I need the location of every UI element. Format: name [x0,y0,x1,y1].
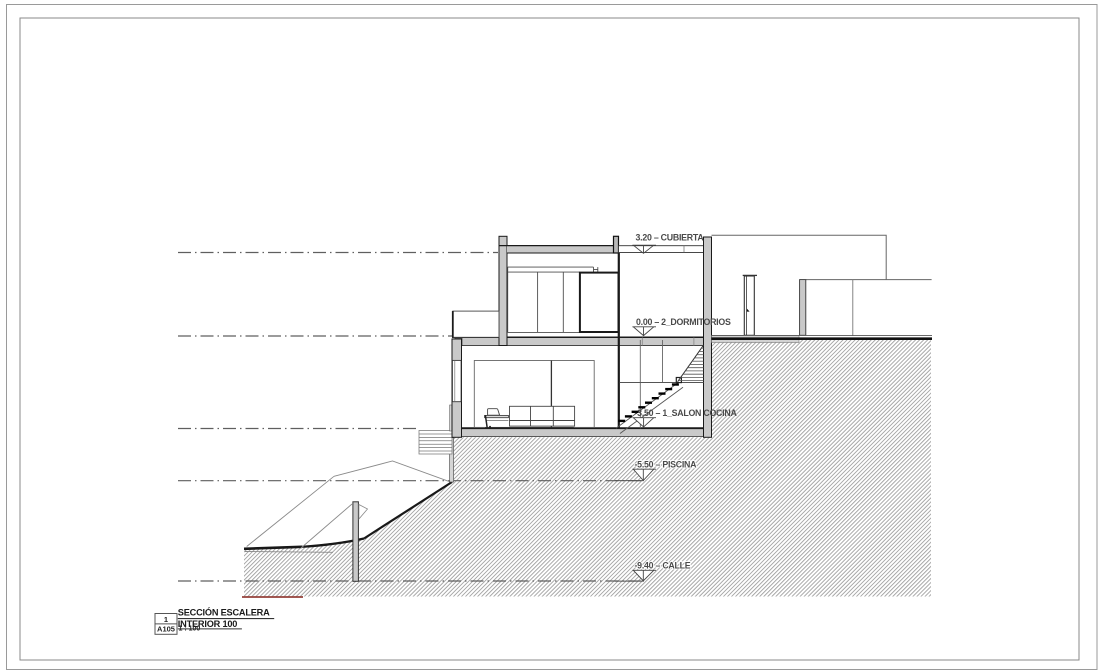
svg-text:0.00 – 2_DORMITORIOS: 0.00 – 2_DORMITORIOS [636,317,731,327]
svg-text:-5.50 – PISCINA: -5.50 – PISCINA [635,460,698,470]
svg-text:-9.40 – CALLE: -9.40 – CALLE [635,560,691,570]
svg-text:A105: A105 [157,625,175,634]
svg-text:1: 1 [164,615,168,624]
svg-text:SECCIÓN ESCALERA: SECCIÓN ESCALERA [178,607,270,618]
svg-text:3.20 – CUBIERTA: 3.20 – CUBIERTA [636,233,705,243]
svg-text:-3.50 – 1_SALON COCINA: -3.50 – 1_SALON COCINA [635,408,738,418]
